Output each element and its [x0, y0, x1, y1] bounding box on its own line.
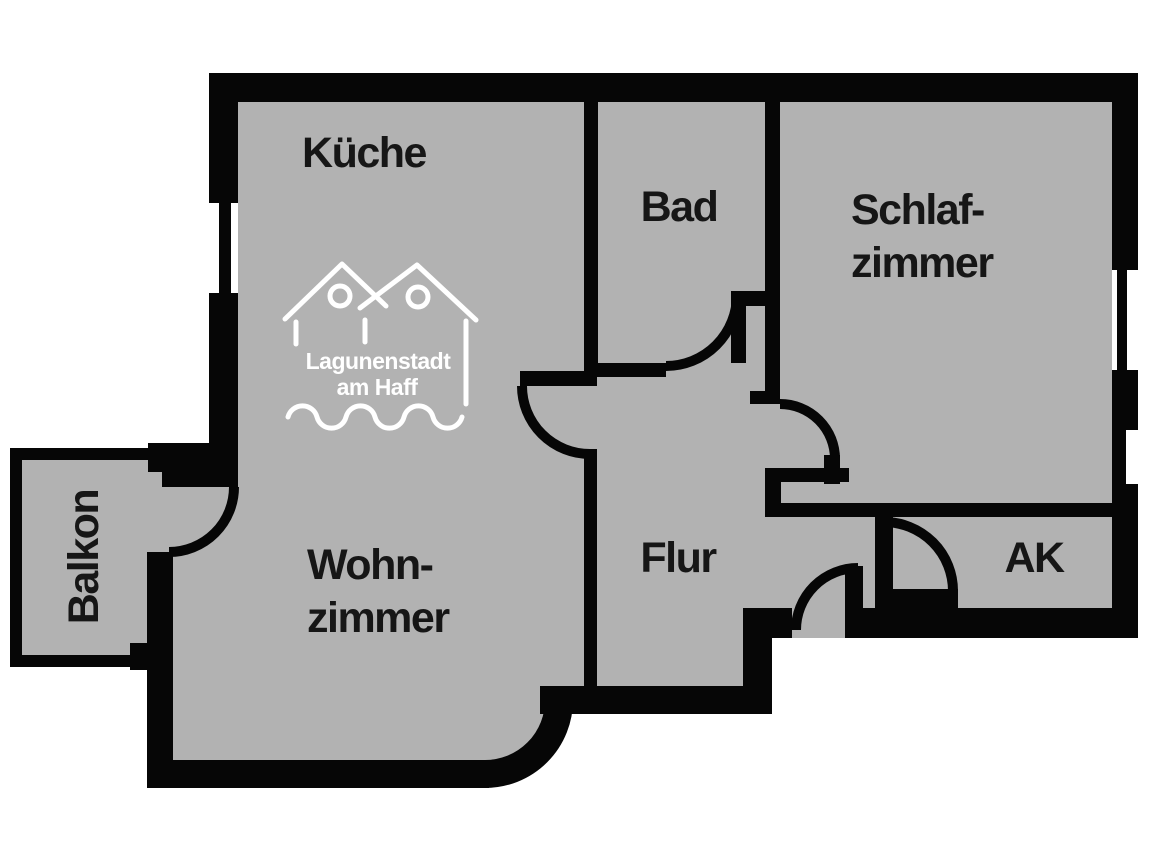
balcony-wall-top	[10, 448, 150, 460]
logo-text-line1: Lagunenstadt	[306, 348, 452, 374]
wall-step-block	[743, 608, 772, 714]
balcony-wall-bottom	[10, 655, 150, 667]
door-leaf-schlafzimmer	[824, 455, 840, 484]
label-schlafzimmer-line2: zimmer	[851, 239, 994, 287]
label-wohnzimmer-line2: zimmer	[307, 594, 450, 642]
door-leaf-balkon	[162, 470, 238, 487]
wall-wohn-flur-divider	[584, 449, 597, 692]
floorplan-canvas: Lagunenstadt am Haff Küche Bad Schlaf- z…	[0, 0, 1152, 864]
door-leaf-ak	[875, 517, 893, 591]
label-ak: AK	[1004, 534, 1065, 582]
wall-schlaf-foot	[750, 391, 780, 404]
wall-east-lower	[1112, 370, 1138, 638]
wall-ak-threshold	[875, 589, 958, 610]
label-flur: Flur	[640, 534, 717, 582]
wall-bottom-wohnzimmer	[147, 760, 489, 788]
floorplan-drawing: Lagunenstadt am Haff Küche Bad Schlaf- z…	[0, 0, 1152, 864]
label-bad: Bad	[641, 183, 718, 231]
wall-bottom-flur	[540, 686, 772, 714]
wall-bad-stub	[746, 291, 766, 306]
wall-east-upper	[1112, 73, 1138, 270]
wall-top	[209, 73, 1138, 102]
door-leaf-entrance	[845, 566, 863, 638]
wall-west-upper	[209, 73, 238, 203]
label-wohnzimmer-line1: Wohn-	[307, 541, 433, 589]
wall-bad-schlaf-divider	[765, 96, 780, 404]
wall-east-notch	[1126, 430, 1141, 484]
wall-bottom-right	[863, 608, 1138, 638]
label-balkon: Balkon	[60, 490, 108, 624]
wall-balcony-junction-top	[148, 443, 238, 472]
wall-ak-divider	[765, 503, 1112, 517]
balcony-wall-left	[10, 448, 22, 667]
wall-kueche-bad-divider	[584, 96, 598, 363]
window-schlafzimmer	[1117, 266, 1127, 374]
floor-wohnzimmer	[173, 470, 743, 760]
logo-text-line2: am Haff	[337, 374, 419, 400]
label-schlafzimmer-line1: Schlaf-	[851, 186, 984, 234]
window-kueche	[219, 199, 231, 297]
door-leaf-wohnzimmer	[520, 371, 597, 386]
label-kueche: Küche	[302, 129, 427, 177]
wall-west-mid	[209, 293, 238, 446]
wall-entrance-jamb	[770, 608, 792, 638]
